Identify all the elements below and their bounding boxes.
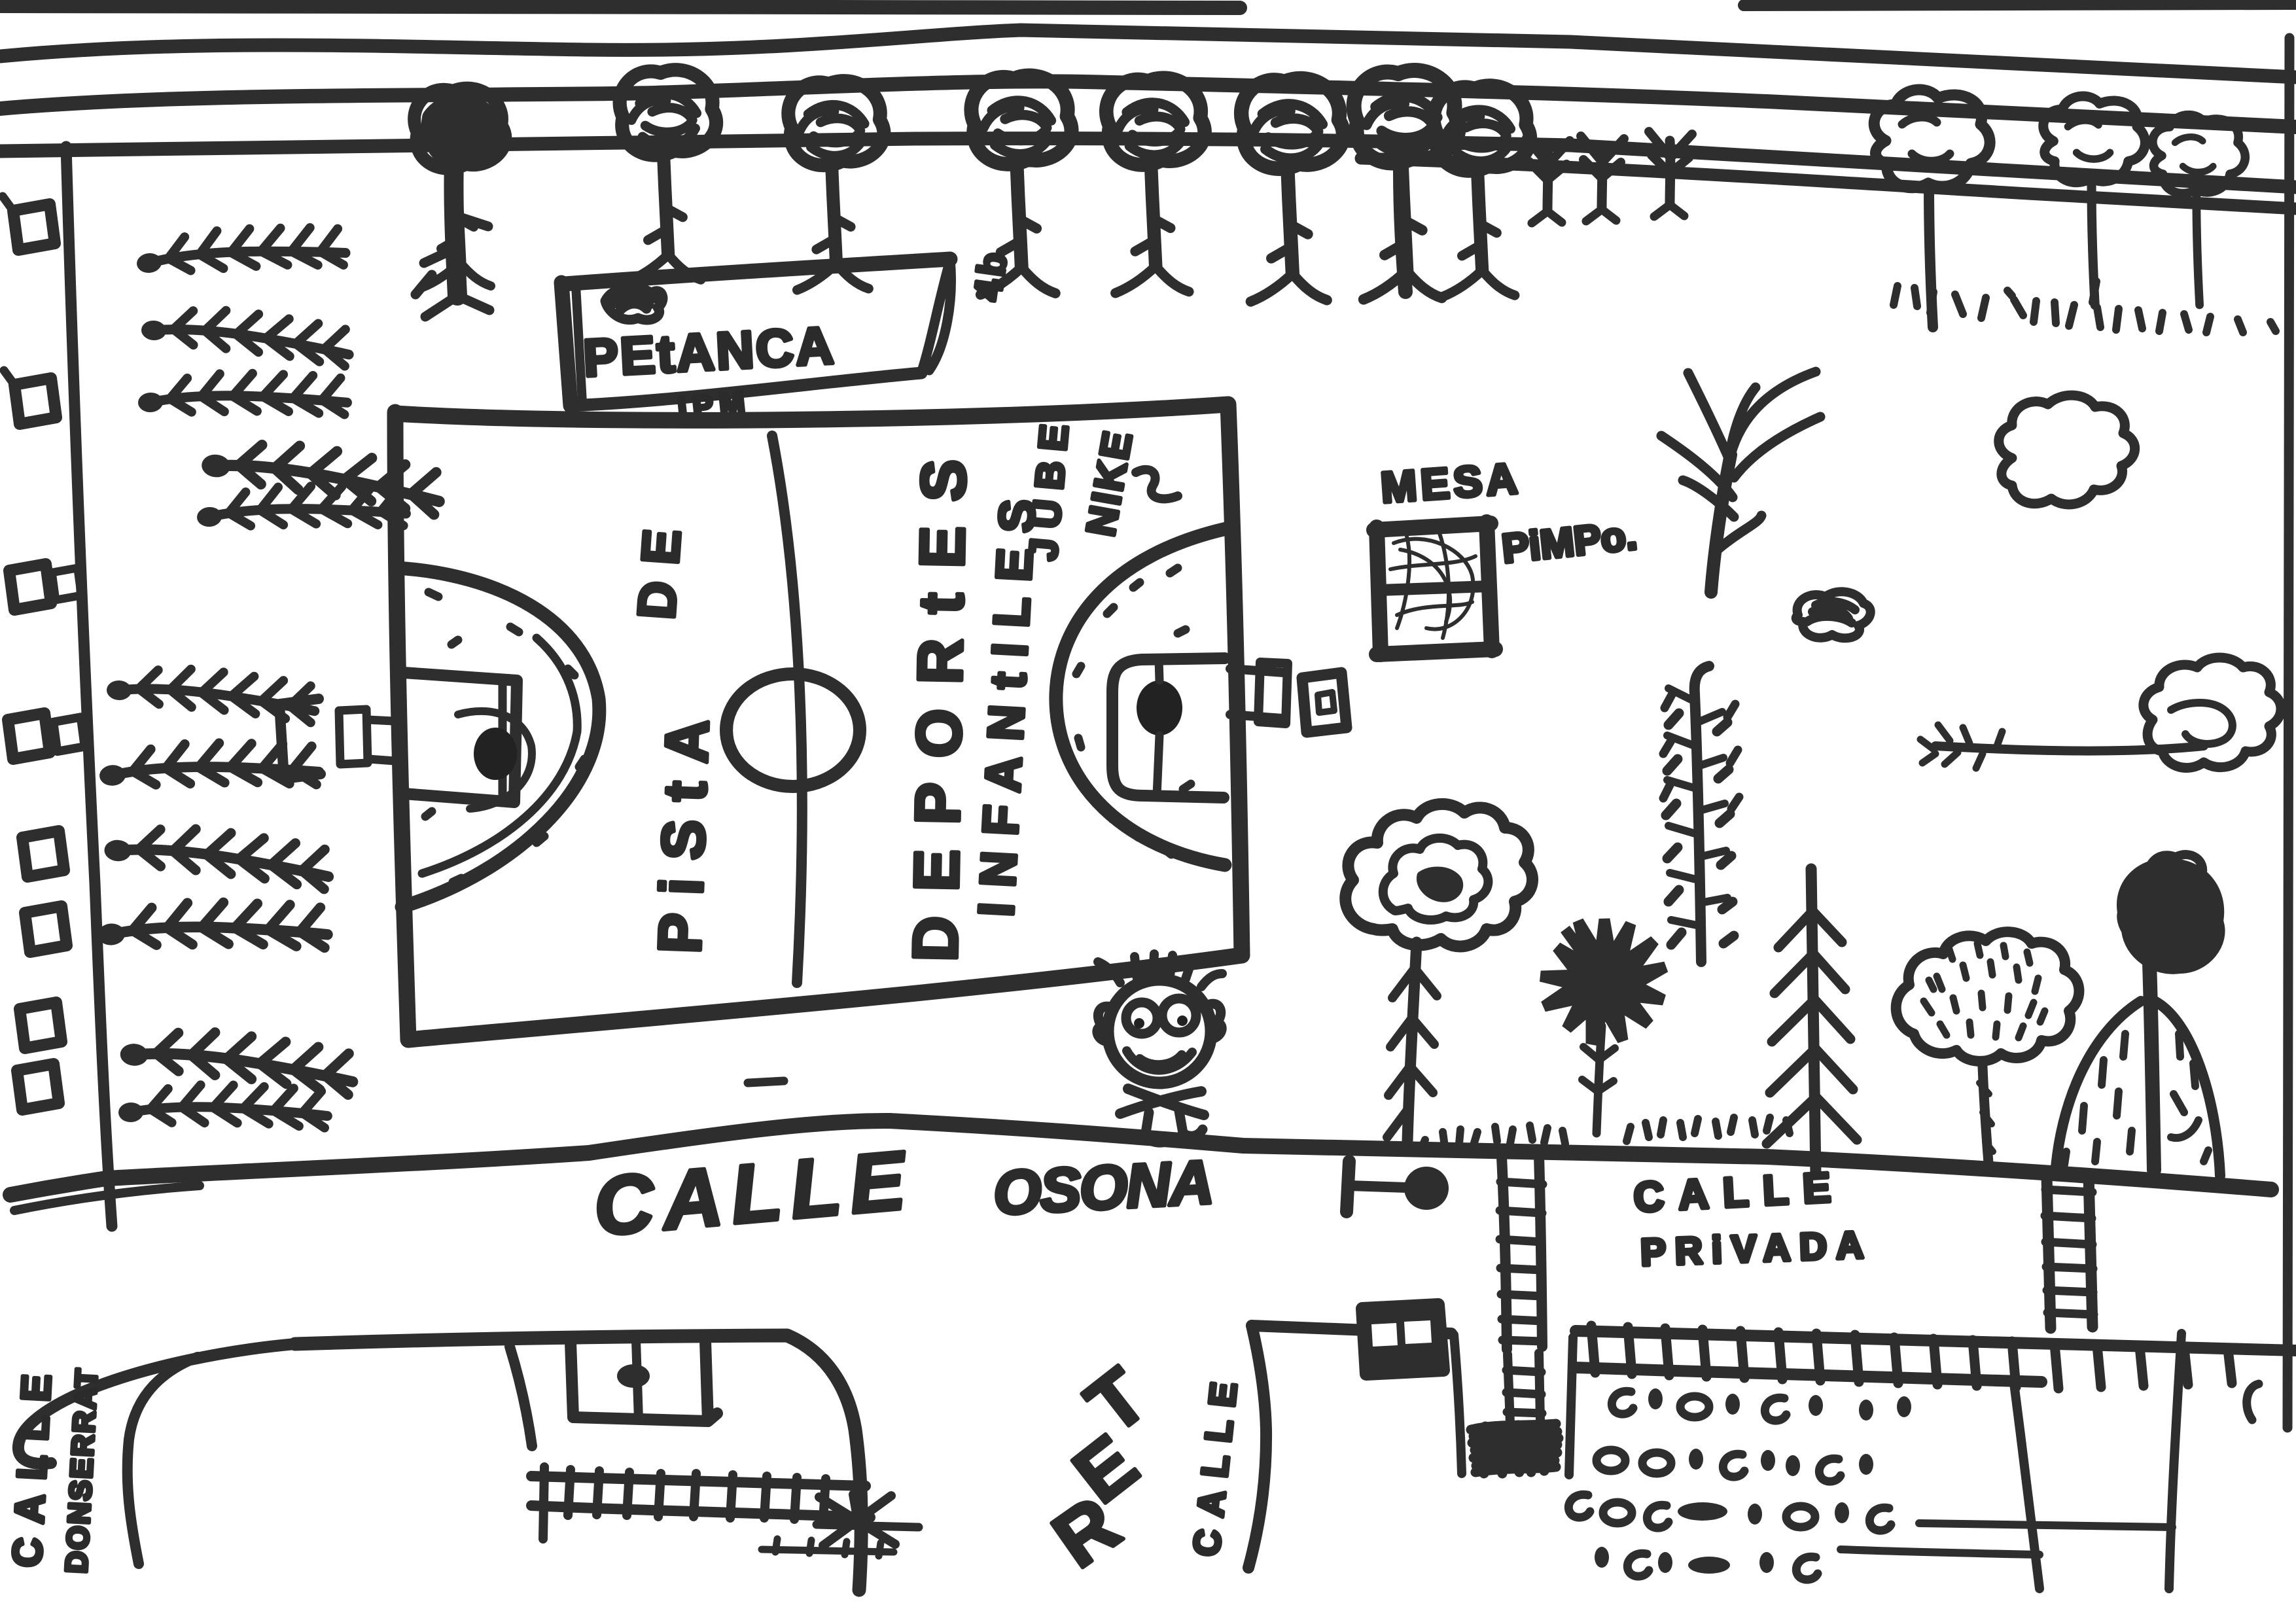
svg-text:CALLE: CALLE xyxy=(5,1359,60,1568)
svg-text:PEtANCA: PEtANCA xyxy=(582,316,837,387)
svg-text:PiMPo.: PiMPo. xyxy=(1500,513,1639,572)
svg-text:NIKE: NIKE xyxy=(1078,426,1141,540)
svg-text:PiStA: PiStA xyxy=(646,700,722,955)
svg-text:MESA: MESA xyxy=(1379,453,1523,512)
svg-text:OSONA: OSONA xyxy=(992,1148,1214,1227)
svg-text:4b: 4b xyxy=(966,246,1016,304)
svg-text:PRiVADA: PRiVADA xyxy=(1640,1224,1873,1274)
svg-text:DE: DE xyxy=(627,510,692,621)
svg-text:DEPORtES: DEPORtES xyxy=(900,434,980,962)
svg-text:CALLE: CALLE xyxy=(1633,1163,1846,1221)
svg-text:JUBE: JUBE xyxy=(1021,412,1077,562)
svg-text:CALLE: CALLE xyxy=(1185,1368,1246,1559)
